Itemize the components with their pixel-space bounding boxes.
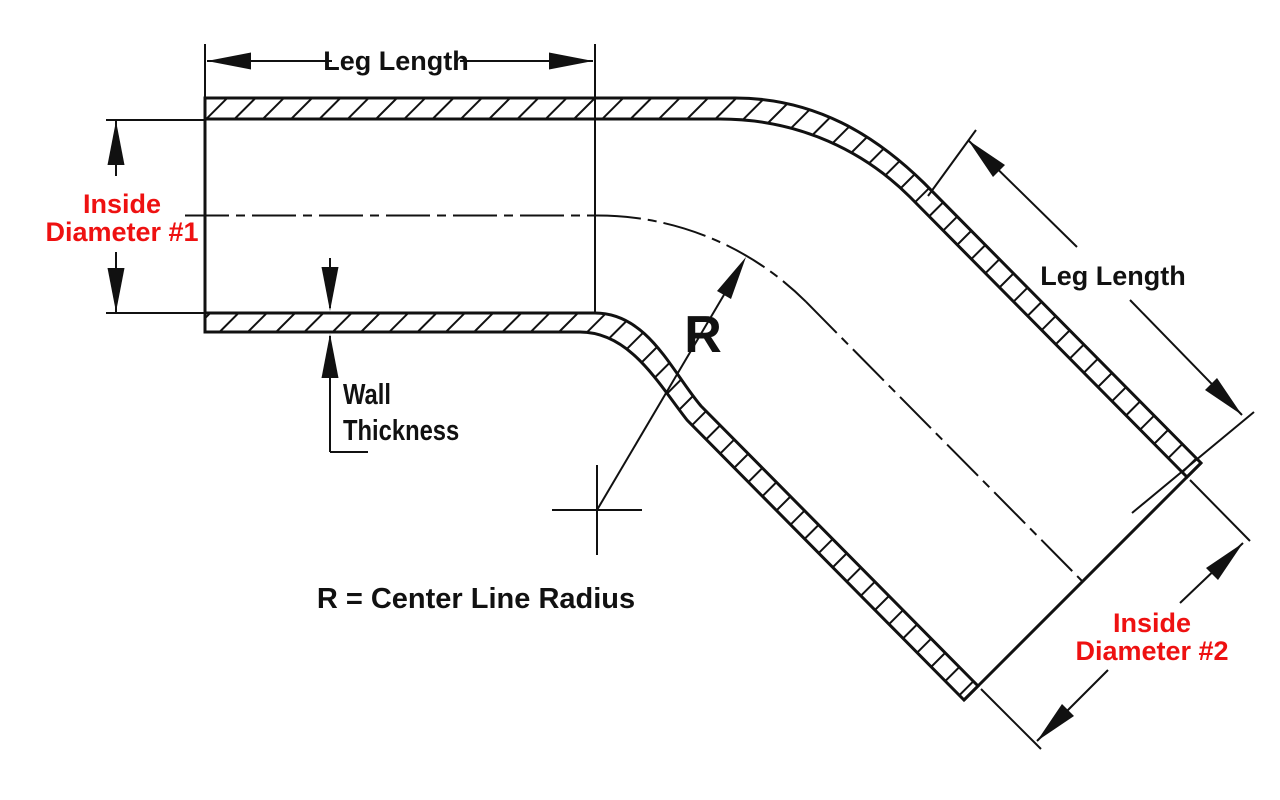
wall-thickness-label-line2: Thickness — [343, 414, 459, 447]
radius-leader-line — [597, 266, 741, 510]
inner-wall-hatched-band — [205, 313, 978, 700]
inside-diameter-2-label-line2: Diameter #2 — [1075, 636, 1228, 666]
elbow-diagram: Leg Length Inside Diameter #1 Wall Thick… — [0, 0, 1280, 800]
extension-line-lower — [981, 689, 1041, 749]
leg-length-top-label: Leg Length — [323, 46, 468, 76]
leg-length-right-dimension — [928, 130, 1254, 513]
arrowhead-up — [108, 121, 125, 165]
inside-diameter-1-label-line2: Diameter #1 — [45, 217, 198, 247]
wall-thickness-label-line1: Wall — [343, 378, 391, 411]
centerline-diagonal — [806, 302, 1083, 582]
arrowhead-upper — [1206, 543, 1243, 580]
arrowhead-radius — [717, 257, 746, 299]
radius-callout — [552, 257, 746, 555]
inside-diameter-1-label-line1: Inside — [83, 189, 161, 219]
radius-symbol-label: R — [684, 306, 722, 364]
centerline — [185, 215, 1083, 581]
technical-diagram-canvas: Leg Length Inside Diameter #1 Wall Thick… — [0, 0, 1280, 800]
arrowhead-up — [322, 334, 339, 378]
arrowhead-down — [108, 268, 125, 312]
leg-length-top-dimension — [205, 44, 595, 313]
leg-length-right-label: Leg Length — [1040, 261, 1185, 291]
radius-note-label: R = Center Line Radius — [317, 583, 635, 615]
extension-line-upper — [1190, 480, 1250, 541]
arrowhead-down — [322, 267, 339, 311]
arrowhead-left — [207, 53, 251, 70]
centerline-bend-arc — [597, 215, 806, 301]
inside-diameter-2-label-line1: Inside — [1113, 608, 1191, 638]
arrowhead-right — [549, 53, 593, 70]
